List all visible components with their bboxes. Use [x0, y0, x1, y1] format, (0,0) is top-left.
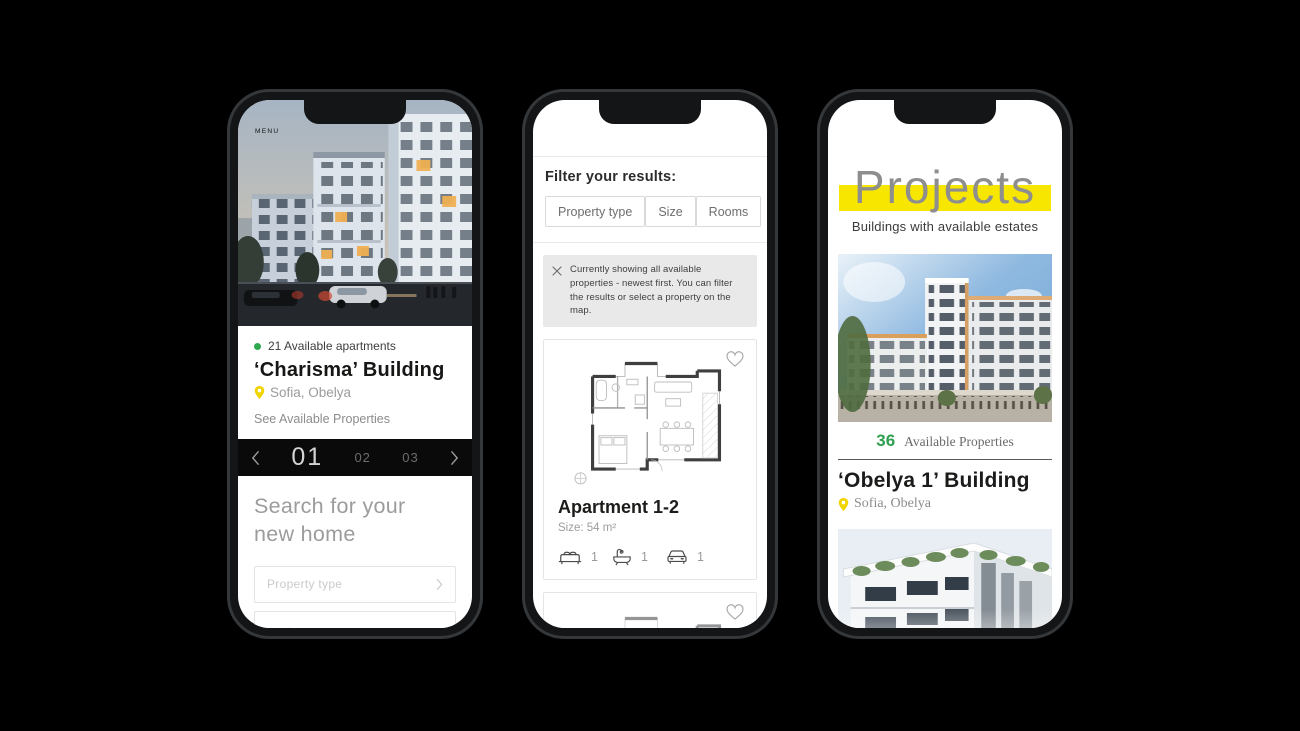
projects-title: Projects: [828, 163, 1062, 211]
building-info: 21 Available apartments ‘Charisma’ Build…: [238, 326, 472, 426]
carousel-slide-2[interactable]: 02: [354, 450, 370, 465]
surface-placeholder: Surface: [267, 625, 310, 628]
availability-status: 21 Available apartments: [254, 339, 456, 353]
filter-heading: Filter your results:: [545, 169, 755, 185]
feature-parking: 1: [666, 548, 720, 565]
slide-carousel: 01 02 03: [238, 439, 472, 476]
bed-icon: [558, 548, 582, 565]
heart-icon: [725, 603, 745, 621]
stage: MENU 21 Available apartments ‘Charisma’ …: [0, 0, 1300, 731]
parking-count: 1: [697, 550, 704, 564]
info-banner: Currently showing all available properti…: [543, 255, 757, 327]
floor-plan-image: [558, 605, 742, 628]
floor-plan-drawing: [562, 350, 738, 490]
project-photo[interactable]: [838, 254, 1052, 422]
apartment-card[interactable]: Apartment 1-2 Size: 54 m² 1 1 1: [543, 339, 757, 580]
projects-screen: Projects Buildings with available estate…: [828, 100, 1062, 628]
apartment-title: Apartment 1-2: [558, 497, 742, 518]
chevron-left-icon[interactable]: [251, 450, 260, 466]
property-type-placeholder: Property type: [267, 577, 342, 591]
apartment-size: Size: 54 m²: [558, 522, 742, 534]
filter-property-type[interactable]: Property type: [545, 196, 645, 227]
search-section: Search for your new home Property type S…: [238, 476, 472, 628]
surface-select[interactable]: Surface: [254, 611, 456, 628]
chevron-right-icon: [436, 578, 443, 591]
apartment-card-partial[interactable]: [543, 592, 757, 628]
bathroom-count: 1: [641, 550, 648, 564]
info-banner-text: Currently showing all available properti…: [570, 263, 745, 318]
bath-icon: [612, 547, 632, 566]
fade-overlay: [838, 609, 1052, 628]
phone-mockup-home: MENU 21 Available apartments ‘Charisma’ …: [227, 89, 483, 639]
favorite-button[interactable]: [725, 603, 745, 621]
project-location: Sofia, Obelya: [838, 496, 1052, 512]
phone-notch: [599, 100, 701, 124]
map-pin-icon: [254, 385, 265, 400]
available-count: 36: [876, 431, 895, 451]
close-icon[interactable]: [552, 266, 562, 276]
building-location: Sofia, Obelya: [254, 385, 456, 400]
listings-screen: Filter your results: Property type Size …: [533, 100, 767, 628]
carousel-slide-1[interactable]: 01: [291, 443, 323, 472]
favorite-button[interactable]: [725, 350, 745, 368]
building-title: ‘Charisma’ Building: [254, 359, 456, 382]
green-dot-icon: [254, 343, 261, 350]
location-text: Sofia, Obelya: [854, 496, 931, 512]
chevron-right-icon[interactable]: [450, 450, 459, 466]
floor-plan-image: [558, 350, 742, 488]
phone-mockup-projects: Projects Buildings with available estate…: [817, 89, 1073, 639]
phone-notch: [894, 100, 996, 124]
phone-notch: [304, 100, 406, 124]
home-screen: MENU 21 Available apartments ‘Charisma’ …: [238, 100, 472, 628]
menu-label: MENU: [255, 128, 279, 135]
divider: [838, 459, 1052, 460]
location-text: Sofia, Obelya: [270, 385, 351, 400]
map-pin-icon: [838, 497, 849, 512]
heart-icon: [725, 350, 745, 368]
feature-bedrooms: 1: [558, 548, 612, 565]
bedroom-count: 1: [591, 550, 598, 564]
menu-button[interactable]: MENU: [255, 126, 279, 135]
feature-bathrooms: 1: [612, 547, 666, 566]
filter-size[interactable]: Size: [645, 196, 695, 227]
phone-mockup-listings: Filter your results: Property type Size …: [522, 89, 778, 639]
available-count-label: Available Properties: [904, 434, 1014, 450]
obelya-building-illustration: [838, 254, 1052, 422]
search-heading: Search for your new home: [254, 493, 429, 549]
apartment-features: 1 1 1: [558, 547, 720, 566]
carousel-slide-3[interactable]: 03: [402, 450, 418, 465]
projects-subtitle: Buildings with available estates: [828, 219, 1062, 234]
next-project-photo[interactable]: [838, 529, 1052, 628]
filter-chips: Property type Size Rooms: [545, 196, 755, 227]
project-title[interactable]: ‘Obelya 1’ Building: [838, 469, 1052, 493]
filter-rooms[interactable]: Rooms: [696, 196, 762, 227]
car-icon: [666, 548, 688, 565]
property-type-select[interactable]: Property type: [254, 566, 456, 603]
projects-heading-wrap: Projects: [828, 163, 1062, 211]
see-available-properties-link[interactable]: See Available Properties: [254, 412, 456, 426]
availability-text: 21 Available apartments: [268, 339, 396, 353]
available-properties-row: 36 Available Properties: [828, 431, 1062, 451]
floor-plan-drawing: [562, 605, 738, 628]
hero-building-photo: MENU: [238, 100, 472, 326]
filter-section: Filter your results: Property type Size …: [533, 157, 767, 243]
